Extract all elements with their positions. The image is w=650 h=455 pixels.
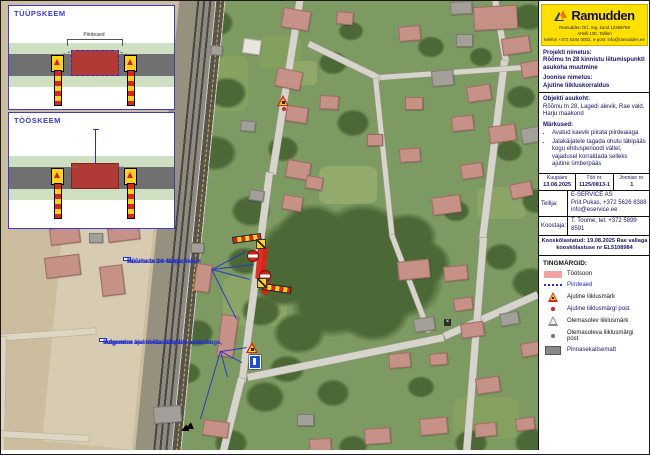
- company-address-line: telefon +372 5344 0002, e-post: info@ram…: [544, 37, 645, 43]
- building: [501, 35, 531, 56]
- brand-name: Ramudden: [571, 8, 634, 23]
- scheme-2-title: TÖÖSKEEM: [14, 116, 61, 125]
- legend-row: Pinnasekaitsematt: [543, 346, 646, 355]
- red-post-dot-icon: [551, 307, 555, 311]
- verge-band: [9, 76, 174, 87]
- building: [399, 148, 421, 163]
- leader-line: [200, 351, 221, 419]
- building: [460, 321, 485, 339]
- building: [431, 69, 454, 87]
- building: [460, 162, 484, 180]
- vegetation-patch: [245, 381, 285, 413]
- building: [202, 419, 230, 438]
- workzone-swatch: [544, 271, 562, 278]
- work-zone: [71, 50, 119, 76]
- legend-label: Töötsoon: [567, 271, 592, 277]
- legend-title: TINGMÄRGID:: [543, 260, 646, 267]
- ramudden-logo-icon: [554, 10, 568, 21]
- building: [453, 296, 474, 312]
- legend-row: Ajutine liiklusmärk: [543, 292, 646, 302]
- building: [388, 352, 411, 369]
- building: [242, 38, 262, 55]
- dimension-line: [95, 129, 96, 165]
- legend: TINGMÄRGID: Töötsoon Piirdeaed Ajutine l…: [539, 256, 650, 363]
- striped-post: [54, 183, 62, 219]
- note-item: Avatud kaevik piirata piirdeaiaga: [552, 130, 646, 138]
- location-value: Rõõmu tn 28, Lagedi alevik, Rae vald, Ha…: [543, 104, 646, 119]
- date-label: Kuupäev: [539, 175, 575, 181]
- building: [466, 84, 492, 103]
- traffic-plan-sheet: Teavitada tee sulgemisest Rõõmu tn 24-48…: [0, 0, 650, 455]
- building: [44, 254, 81, 279]
- legend-row: Olemasolev liiklusmärk: [543, 316, 646, 326]
- striped-post: [127, 70, 135, 106]
- building: [473, 5, 518, 31]
- building: [336, 11, 354, 25]
- legend-label: Olemasolev liiklusmärk: [567, 318, 628, 324]
- building: [305, 175, 324, 191]
- building: [398, 25, 421, 42]
- direction-sign-icon: [257, 278, 267, 288]
- legend-row: Olemasoleva liiklusmärgi post: [543, 330, 646, 342]
- drawing-no-value: 1: [614, 182, 650, 188]
- building: [520, 340, 538, 357]
- scheme-2: TÖÖSKEEM: [8, 112, 175, 229]
- building: [443, 264, 468, 281]
- drawing-no-cell: Joonise nr. 1: [614, 174, 650, 190]
- fence-bracket: [67, 39, 123, 46]
- legend-label: Ajutine liiklusmärk: [567, 294, 615, 300]
- notes-section: Märkused: Avatud kaevik piirata piirdeai…: [539, 120, 650, 171]
- gray-post-dot-icon: [551, 334, 555, 338]
- roadwork-sign-icon: [277, 95, 289, 106]
- location-label: Objekti asukoht:: [543, 96, 646, 104]
- building: [319, 95, 339, 110]
- typical-scheme-panel: TÜÜPSKEEM Piirdeaed TÖÖSKEEM: [8, 5, 175, 231]
- building: [474, 422, 497, 438]
- building: [413, 316, 436, 333]
- building: [367, 134, 383, 146]
- building: [397, 259, 431, 281]
- project-label: Projekti nimetus:: [543, 50, 646, 58]
- building: [456, 34, 473, 47]
- roadwork-sign-icon: [548, 292, 558, 302]
- existing-sign-icon: [548, 316, 558, 326]
- roadwork-sign-icon: [246, 342, 258, 353]
- work-zone: [71, 163, 119, 189]
- drawing-no-label: Joonise nr.: [614, 175, 650, 181]
- notes-label: Märkused:: [543, 122, 646, 130]
- building: [451, 115, 474, 132]
- verge-band: [9, 189, 174, 200]
- date-cell: Kuupäev 13.08.2025: [539, 174, 576, 190]
- building: [89, 233, 103, 243]
- meta-table: Kuupäev 13.08.2025 Töö nr. 1125/0813-1 J…: [539, 173, 650, 191]
- existing-sign-marker: ×: [444, 319, 451, 326]
- company-logo-block: Ramudden Ramudden OÜ, reg. kood 12268769…: [541, 4, 648, 46]
- building: [419, 417, 448, 436]
- building: [297, 414, 314, 426]
- building: [193, 263, 213, 293]
- building: [405, 97, 423, 110]
- vegetation-patch: [484, 243, 518, 270]
- building: [309, 438, 332, 450]
- project-value: Rõõmu tn 28 kinnistu liitumispunkti asuk…: [543, 57, 646, 72]
- date-value: 13.08.2025: [539, 182, 575, 188]
- building: [429, 352, 448, 366]
- client-line: Priit Pukas, +372 5626 8388: [571, 200, 647, 208]
- vegetation-patch: [337, 284, 409, 342]
- notice-callout-2: Sulgemine kooskõlastada tee omanikuga, s…: [99, 338, 107, 342]
- title-block-panel: Ramudden Ramudden OÜ, reg. kood 12268769…: [538, 1, 650, 450]
- client-row: Tellija: E-SERVICE AS Priit Pukas, +372 …: [539, 191, 650, 217]
- striped-post: [127, 183, 135, 219]
- note-item: Jalakäijatele tagada ohutu läbipääs kogu…: [552, 139, 646, 169]
- client-line: info@eservice.ee: [571, 207, 647, 215]
- approval-box: Kooskõlastatud: 19.08.2025 Rae vallaga k…: [539, 236, 650, 256]
- building: [281, 7, 312, 32]
- building: [520, 59, 538, 79]
- building: [475, 376, 501, 395]
- building: [210, 45, 223, 56]
- building: [248, 189, 264, 202]
- building: [274, 67, 303, 91]
- building: [450, 1, 473, 15]
- approval-line: kooskõlastuse nr EL5108984: [541, 245, 648, 253]
- work-no-value: 1125/0813-1: [576, 182, 612, 188]
- vegetation-patch: [407, 376, 435, 398]
- info-sign-icon: [249, 355, 261, 369]
- vegetation-patch: [316, 379, 350, 406]
- drawing-value: Ajutine liikluskorraldus: [543, 83, 646, 91]
- scheme-1-title: TÜÜPSKEEM: [14, 9, 66, 18]
- road: [380, 64, 538, 80]
- legend-label: Pinnasekaitsematt: [567, 347, 616, 353]
- drawing-label: Joonise nimetus:: [543, 75, 646, 83]
- building: [520, 125, 538, 145]
- author-value: T. Toome, tel. +372 5899 8591: [571, 218, 647, 234]
- work-no-label: Töö nr.: [576, 175, 612, 181]
- building: [153, 405, 182, 424]
- fence-dotted-line-icon: [544, 284, 562, 286]
- notice-callout-1: Teavitada tee sulgemisest Rõõmu tn 24-48…: [123, 257, 131, 261]
- building: [515, 416, 536, 432]
- author-row: Koostaja: T. Toome, tel. +372 5899 8591: [539, 217, 650, 236]
- no-entry-sign-icon: [247, 250, 259, 262]
- client-line: E-SERVICE AS: [571, 192, 647, 200]
- vegetation-patch: [495, 140, 523, 162]
- vegetation-patch: [377, 213, 437, 261]
- legend-label: Piirdeaed: [567, 282, 592, 288]
- work-no-cell: Töö nr. 1125/0813-1: [576, 174, 613, 190]
- approval-line: Kooskõlastatud: 19.08.2025 Rae vallaga: [541, 238, 648, 246]
- vegetation-patch: [338, 435, 368, 450]
- terrain-patch: [319, 166, 377, 204]
- building: [281, 194, 303, 212]
- scheme-1: TÜÜPSKEEM Piirdeaed: [8, 5, 175, 110]
- location-section: Objekti asukoht: Rõõmu tn 28, Lagedi ale…: [539, 94, 650, 120]
- vegetation-patch: [506, 85, 536, 109]
- plate-swatch-icon: [545, 346, 561, 355]
- client-label: Tellija:: [539, 191, 568, 216]
- project-name-section: Projekti nimetus: Rõõmu tn 28 kinnistu l…: [539, 48, 650, 74]
- legend-row: Piirdeaed: [543, 282, 646, 288]
- striped-post: [54, 70, 62, 106]
- callout-line: Rõõmu tn 24-48 elanikke: [127, 259, 197, 267]
- building: [499, 311, 520, 327]
- callout-line: sulgemise ajal hoida läbipääs avatuna: [103, 340, 212, 348]
- legend-row: Töötsoon: [543, 271, 646, 278]
- author-label: Koostaja:: [539, 217, 568, 235]
- legend-label: Ajutine liiklusmärgi post: [567, 306, 630, 312]
- building: [364, 427, 391, 445]
- vegetation-patch: [469, 47, 493, 66]
- building: [99, 264, 125, 297]
- legend-row: Ajutine liiklusmärgi post: [543, 306, 646, 312]
- vegetation-patch: [336, 109, 370, 136]
- divider: [539, 92, 650, 93]
- sign-post-dot: [282, 107, 286, 111]
- drawing-name-section: Joonise nimetus: Ajutine liikluskorraldu…: [539, 73, 650, 91]
- legend-label: Olemasoleva liiklusmärgi post: [567, 330, 646, 342]
- building: [240, 120, 256, 132]
- fence-label: Piirdeaed: [59, 32, 129, 38]
- building: [285, 105, 309, 124]
- building: [191, 243, 204, 253]
- direction-sign-icon: [256, 239, 266, 249]
